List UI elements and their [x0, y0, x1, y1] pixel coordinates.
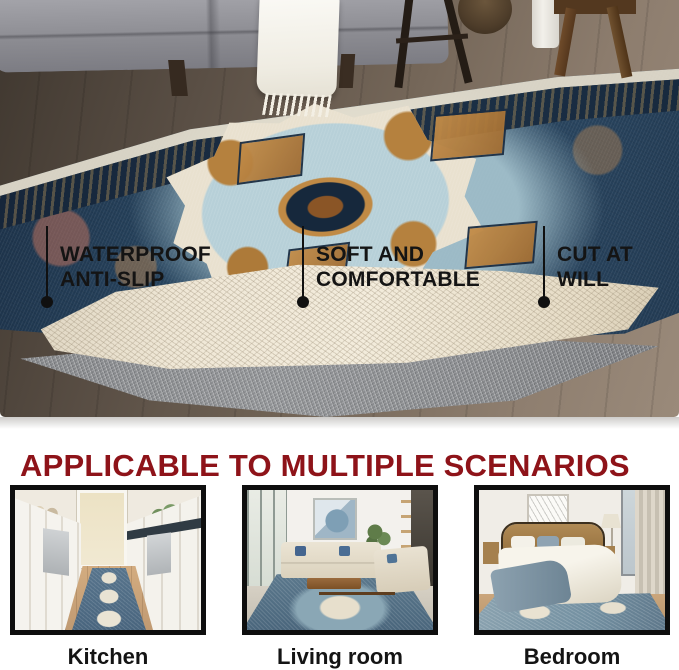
blue-pillow: [387, 554, 398, 564]
callout-text: SOFT AND COMFORTABLE: [316, 242, 480, 292]
throw-blanket: [256, 0, 340, 97]
kitchen-dishwasher: [147, 532, 171, 575]
living-room-side-sofa: [373, 546, 431, 595]
scenario-image-bedroom: [479, 490, 665, 630]
scenario-frame-living-room: [242, 485, 438, 635]
bedroom-wall-art: [527, 494, 569, 528]
callout-line: [46, 226, 48, 300]
kitchen-dishwasher: [43, 528, 69, 576]
callout-line2: ANTI-SLIP: [60, 267, 211, 292]
bedroom-lamp-stand: [611, 528, 613, 548]
rug-motif-block: [430, 109, 508, 162]
wood-chair-leg: [607, 6, 633, 79]
callout-text: WATERPROOF ANTI-SLIP: [60, 242, 211, 292]
callout-line: [543, 226, 545, 300]
coffee-table: [307, 578, 361, 589]
callout-line1: CUT AT: [557, 242, 633, 267]
callout-text: CUT AT WILL: [557, 242, 633, 292]
callout-line1: WATERPROOF: [60, 242, 211, 267]
scenario-image-kitchen: [15, 490, 201, 630]
section-heading: APPLICABLE TO MULTIPLE SCENARIOS: [20, 448, 630, 484]
kitchen-back-door: [77, 490, 127, 568]
blue-pillow: [339, 546, 350, 556]
callout-line1: SOFT AND: [316, 242, 480, 267]
product-infographic: WATERPROOF ANTI-SLIP SOFT AND COMFORTABL…: [0, 0, 679, 670]
gray-sofa: [0, 0, 449, 73]
bedroom-window: [621, 490, 635, 576]
callout-dot: [538, 296, 550, 308]
hero-photo-shadow: [0, 417, 679, 429]
nightstand: [483, 542, 499, 564]
callout-dot: [41, 296, 53, 308]
scenario-label-bedroom: Bedroom: [474, 644, 670, 670]
scenario-label-living-room: Living room: [242, 644, 438, 670]
blue-pillow: [295, 546, 306, 556]
callout-line2: COMFORTABLE: [316, 267, 480, 292]
callout-dot: [297, 296, 309, 308]
living-room-wall-art: [313, 498, 357, 540]
callout-line2: WILL: [557, 267, 633, 292]
woven-basket: [458, 0, 512, 34]
scenario-image-living-room: [247, 490, 433, 630]
scenario-frame-bedroom: [474, 485, 670, 635]
hero-photo: WATERPROOF ANTI-SLIP SOFT AND COMFORTABL…: [0, 0, 679, 417]
scenario-frame-kitchen: [10, 485, 206, 635]
callout-line: [302, 226, 304, 300]
scenario-label-kitchen: Kitchen: [10, 644, 206, 670]
bedroom-lamp: [601, 514, 621, 528]
sofa-leg: [339, 54, 355, 88]
